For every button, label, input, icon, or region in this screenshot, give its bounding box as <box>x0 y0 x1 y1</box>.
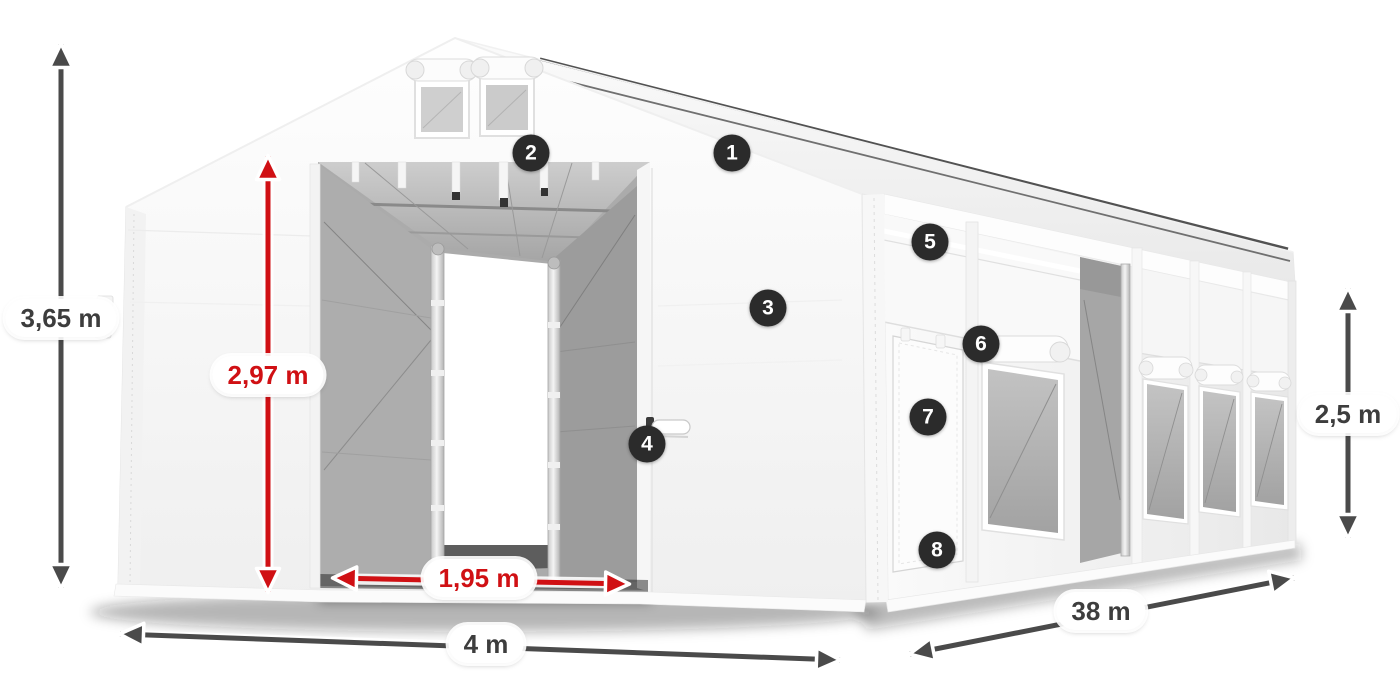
dimension-label-side-height: 2,5 m <box>1300 395 1397 433</box>
callout-badge-2: 2 <box>513 135 550 172</box>
tent-illustration <box>0 0 1400 700</box>
dimension-label-length: 38 m <box>1056 592 1145 630</box>
callout-badge-5: 5 <box>912 224 949 261</box>
dimension-label-total-height: 3,65 m <box>6 299 117 337</box>
gable-vent-right <box>471 57 543 136</box>
dimension-label-width: 4 m <box>449 625 524 663</box>
open-passage <box>433 252 552 545</box>
dimension-label-entrance-width: 1,95 m <box>424 559 535 597</box>
entrance-opening <box>310 162 650 592</box>
callout-badge-1: 1 <box>714 135 751 172</box>
callout-badge-7: 7 <box>910 399 947 436</box>
dimension-label-entrance-height: 2,97 m <box>213 356 324 394</box>
tent-dimension-diagram: 3,65 m 2,97 m 1,95 m 4 m 38 m 2,5 m 1 2 … <box>0 0 1400 700</box>
entrance-pole-left <box>431 243 444 588</box>
entrance-pole-right <box>548 257 560 584</box>
wall-mullion <box>966 222 978 582</box>
callout-badge-6: 6 <box>963 326 1000 363</box>
callout-badge-3: 3 <box>750 290 787 327</box>
entrance-jamb-right <box>637 162 650 592</box>
open-side-bay <box>1080 257 1130 563</box>
callout-badge-4: 4 <box>629 426 666 463</box>
gable-vent-left <box>406 59 478 138</box>
callout-badge-8: 8 <box>919 532 956 569</box>
frame-pole <box>1121 264 1130 556</box>
